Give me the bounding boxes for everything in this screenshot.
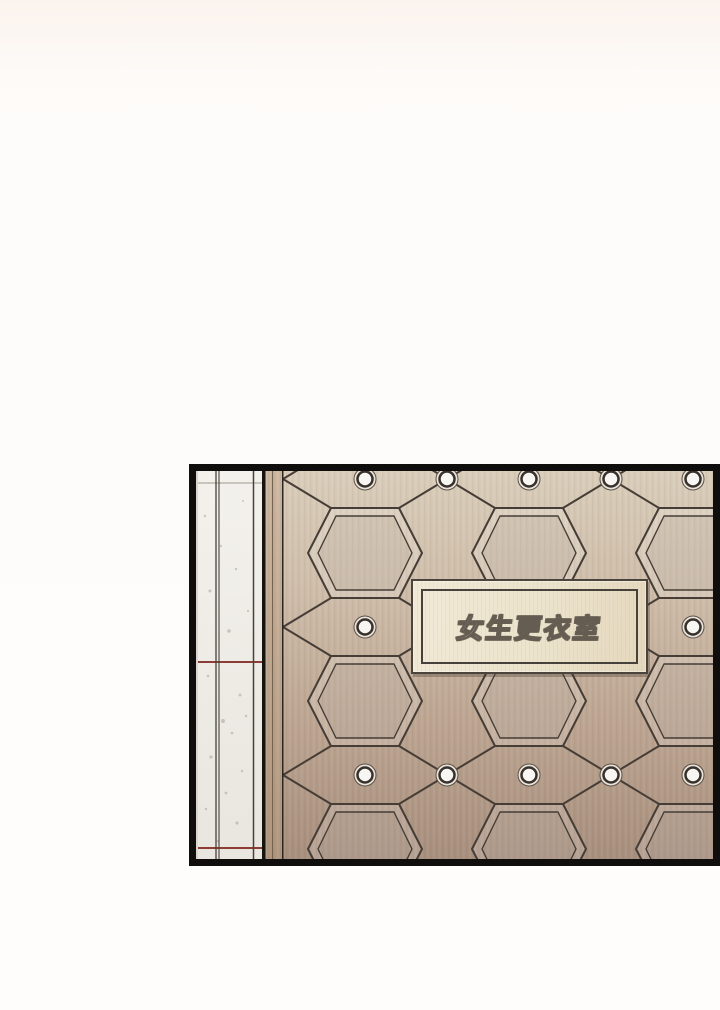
- sign-plaque: 女生更衣室: [411, 579, 648, 674]
- comic-panel: 女生更衣室: [189, 464, 720, 866]
- sign-plaque-inner: 女生更衣室: [421, 589, 638, 664]
- marble-wall-strip: [196, 471, 266, 859]
- page-background: 女生更衣室: [0, 0, 720, 1010]
- sign-text: 女生更衣室: [455, 607, 605, 646]
- door-frame-strip: [262, 471, 285, 859]
